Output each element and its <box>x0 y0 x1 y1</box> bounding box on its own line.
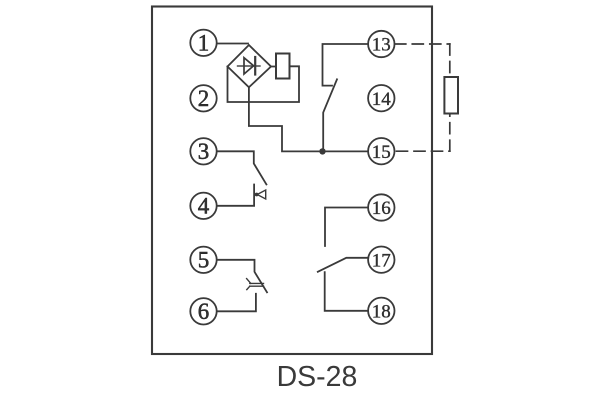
svg-text:4: 4 <box>198 194 210 219</box>
svg-text:DS-28: DS-28 <box>277 361 358 393</box>
svg-text:3: 3 <box>198 139 210 164</box>
svg-text:1: 1 <box>198 31 210 56</box>
svg-text:17: 17 <box>372 250 391 271</box>
svg-text:18: 18 <box>372 301 391 322</box>
svg-text:15: 15 <box>372 142 391 163</box>
svg-text:5: 5 <box>198 248 210 273</box>
svg-text:16: 16 <box>372 198 391 219</box>
svg-text:14: 14 <box>372 89 392 110</box>
svg-text:13: 13 <box>372 35 391 56</box>
svg-text:6: 6 <box>198 299 210 324</box>
svg-text:2: 2 <box>198 86 210 111</box>
